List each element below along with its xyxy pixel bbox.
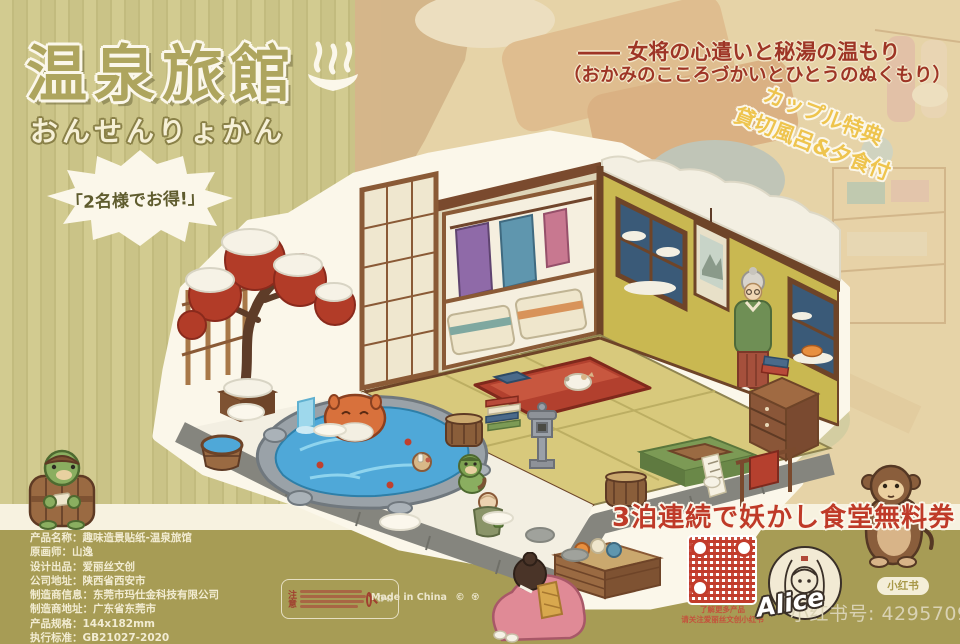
tidy-man-icon: ♼ [471, 592, 480, 603]
title-kana: おんせんりょかん [30, 110, 286, 150]
wooden-bucket [202, 436, 242, 470]
made-in-text: Made in China [371, 592, 447, 603]
qr-finder-icon [691, 579, 709, 597]
notice-label: 注意 [286, 590, 296, 608]
product-info-line: 产品名称：趣味造景贴纸-温泉旅馆 [30, 531, 219, 545]
product-info-line: 原画师：山逸 [30, 545, 219, 559]
pink-kimono [544, 209, 569, 267]
notice-fine-print [300, 588, 366, 611]
product-info-line: 执行标准：GB21027-2020 [30, 631, 219, 644]
product-info-line: 制造商地址：广东省东莞市 [30, 602, 219, 616]
product-info-line: 产品规格：144x182mm [30, 617, 219, 631]
sake-tray [413, 453, 431, 471]
page-title: 温泉旅館 [26, 24, 298, 113]
purple-kimono [456, 223, 492, 298]
xiaohongshu-badge: 小红书 [877, 577, 929, 595]
qr-code [689, 537, 755, 603]
teal-kimono [500, 215, 536, 288]
onsen-mark-icon [302, 36, 364, 94]
window-cat [802, 346, 822, 357]
speech-bubble-text: 「2名様でお得!」 [66, 184, 205, 214]
package-front: 温泉旅館 おんせんりょかん 「2名様でお得!」 ―― 女将の心遣いと秘湯の温もり… [0, 0, 960, 644]
shoji-screen [362, 174, 436, 388]
product-info-line: 公司地址：陕西省西安市 [30, 574, 219, 588]
product-info-line: 设计出品：爱丽丝文创 [30, 560, 219, 574]
made-in-china-label: Made in China © ♼ [371, 592, 480, 603]
qr-finder-icon [691, 539, 709, 557]
qr-finder-icon [735, 539, 753, 557]
rabbit [704, 477, 720, 488]
copyright-icon: © [455, 592, 465, 603]
product-info-line: 制造商信息：东莞市玛仕金科技有限公司 [30, 588, 219, 602]
promo-banner: 3泊連続で妖かし食堂無料券 [612, 497, 955, 534]
bowing-okami [478, 552, 593, 644]
woven-basket [446, 414, 482, 446]
product-info-block: 产品名称：趣味造景贴纸-温泉旅馆 原画师：山逸 设计出品：爱丽丝文创 公司地址：… [30, 531, 219, 644]
barrel-kappa [12, 438, 107, 533]
